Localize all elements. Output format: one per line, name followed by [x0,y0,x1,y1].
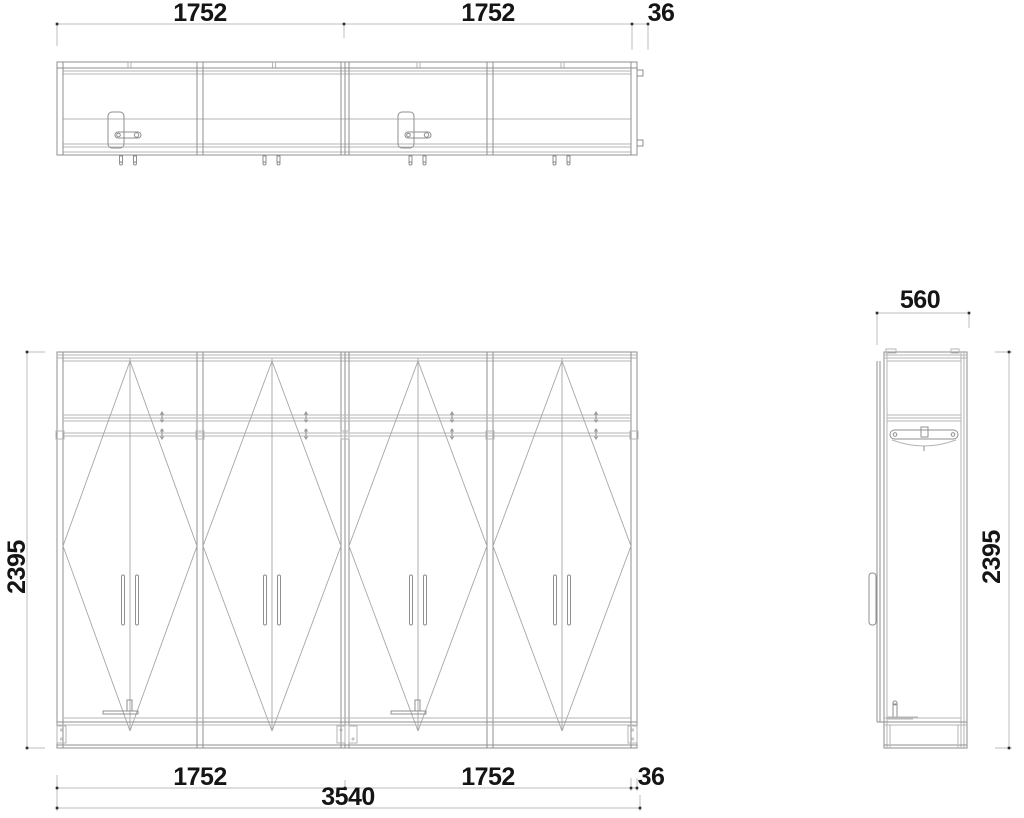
side-door-edge [877,361,880,722]
plan-handle-pins [120,156,571,165]
dim-side-width: 560 [900,286,940,314]
dimension-top-chain: 1752 1752 36 [56,0,675,50]
technical-drawing-canvas: 1752 1752 36 [0,0,1024,818]
door-section-1 [63,358,197,731]
dim-top-left: 1752 [173,0,227,27]
plan-door-joints [128,62,564,68]
side-bottom-pin [893,701,897,717]
bottom-lever-bracket [103,700,138,714]
dim-top-offset: 36 [648,0,675,27]
dim-front-height: 2395 [3,540,31,594]
plan-view [57,62,643,165]
dimension-side-width: 560 [876,286,971,345]
dim-total-width: 3540 [321,783,375,811]
rail-bracket [890,427,958,451]
dim-side-height: 2395 [978,530,1006,584]
dim-top-right: 1752 [461,0,515,27]
dim-bottom-left: 1752 [173,763,227,791]
dimension-front-height: 2395 [3,351,45,750]
side-handle [869,573,876,625]
dimension-total-width: 3540 [56,783,642,811]
plan-partitions [63,62,631,155]
door-section-3 [349,358,487,731]
plinth-brackets [57,726,637,743]
door-handles [122,575,571,625]
shelf-support-plates [56,431,638,439]
bottom-lever-bracket [391,700,426,714]
side-shelf-lines [887,415,961,421]
shelf-lines [63,415,631,436]
dim-bottom-right: 1752 [461,763,515,791]
lift-mechanism [398,112,431,148]
plinth [57,718,637,745]
door-section-4 [493,358,631,731]
dim-bottom-offset: 36 [638,763,665,791]
side-bottom [877,701,967,748]
plan-horizontal-lines [63,71,631,152]
plan-side-tabs [637,70,643,146]
door-section-2 [203,358,341,731]
lift-mechanism [108,112,141,148]
dimension-side-height: 2395 [978,351,1012,750]
front-view [56,352,638,748]
side-view [869,349,967,748]
front-top-lines [57,355,637,361]
side-inner-lines [884,352,967,748]
